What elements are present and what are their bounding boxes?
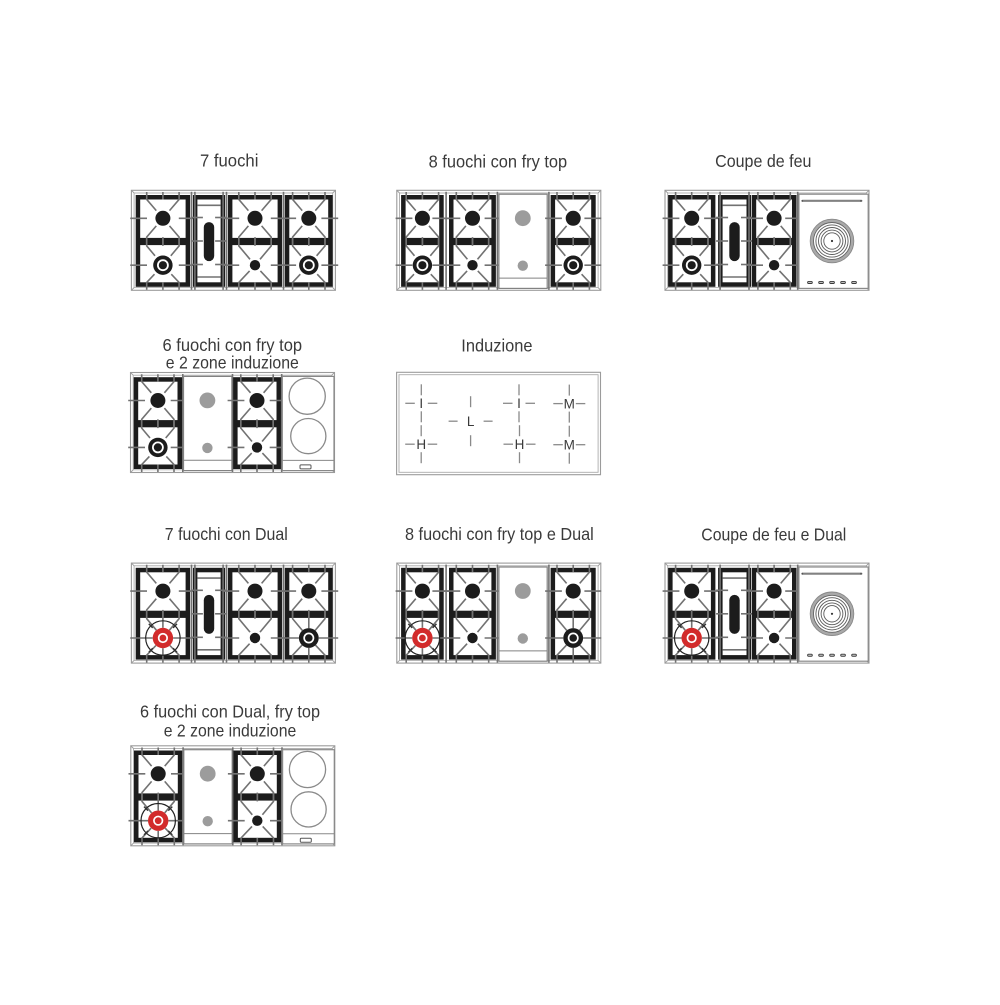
svg-text:Induzione: Induzione (461, 335, 532, 355)
svg-text:8 fuochi con fry top e Dual: 8 fuochi con fry top e Dual (405, 524, 594, 544)
svg-text:7 fuochi con Dual: 7 fuochi con Dual (165, 524, 288, 544)
svg-text:H: H (416, 437, 426, 452)
svg-text:8 fuochi con fry top: 8 fuochi con fry top (429, 151, 568, 171)
svg-text:e 2 zone induzione: e 2 zone induzione (164, 720, 297, 740)
svg-text:I: I (419, 396, 423, 411)
svg-text:L: L (467, 414, 475, 429)
svg-text:e 2 zone induzione: e 2 zone induzione (166, 353, 299, 373)
svg-text:M: M (564, 396, 575, 411)
svg-text:7 fuochi: 7 fuochi (200, 151, 258, 171)
svg-text:H: H (515, 437, 525, 452)
svg-text:6 fuochi con Dual, fry top: 6 fuochi con Dual, fry top (140, 702, 320, 722)
svg-text:Coupe de feu e Dual: Coupe de feu e Dual (701, 525, 846, 545)
svg-text:M: M (564, 438, 575, 453)
svg-text:Coupe de feu: Coupe de feu (715, 151, 811, 171)
svg-text:I: I (517, 396, 521, 411)
